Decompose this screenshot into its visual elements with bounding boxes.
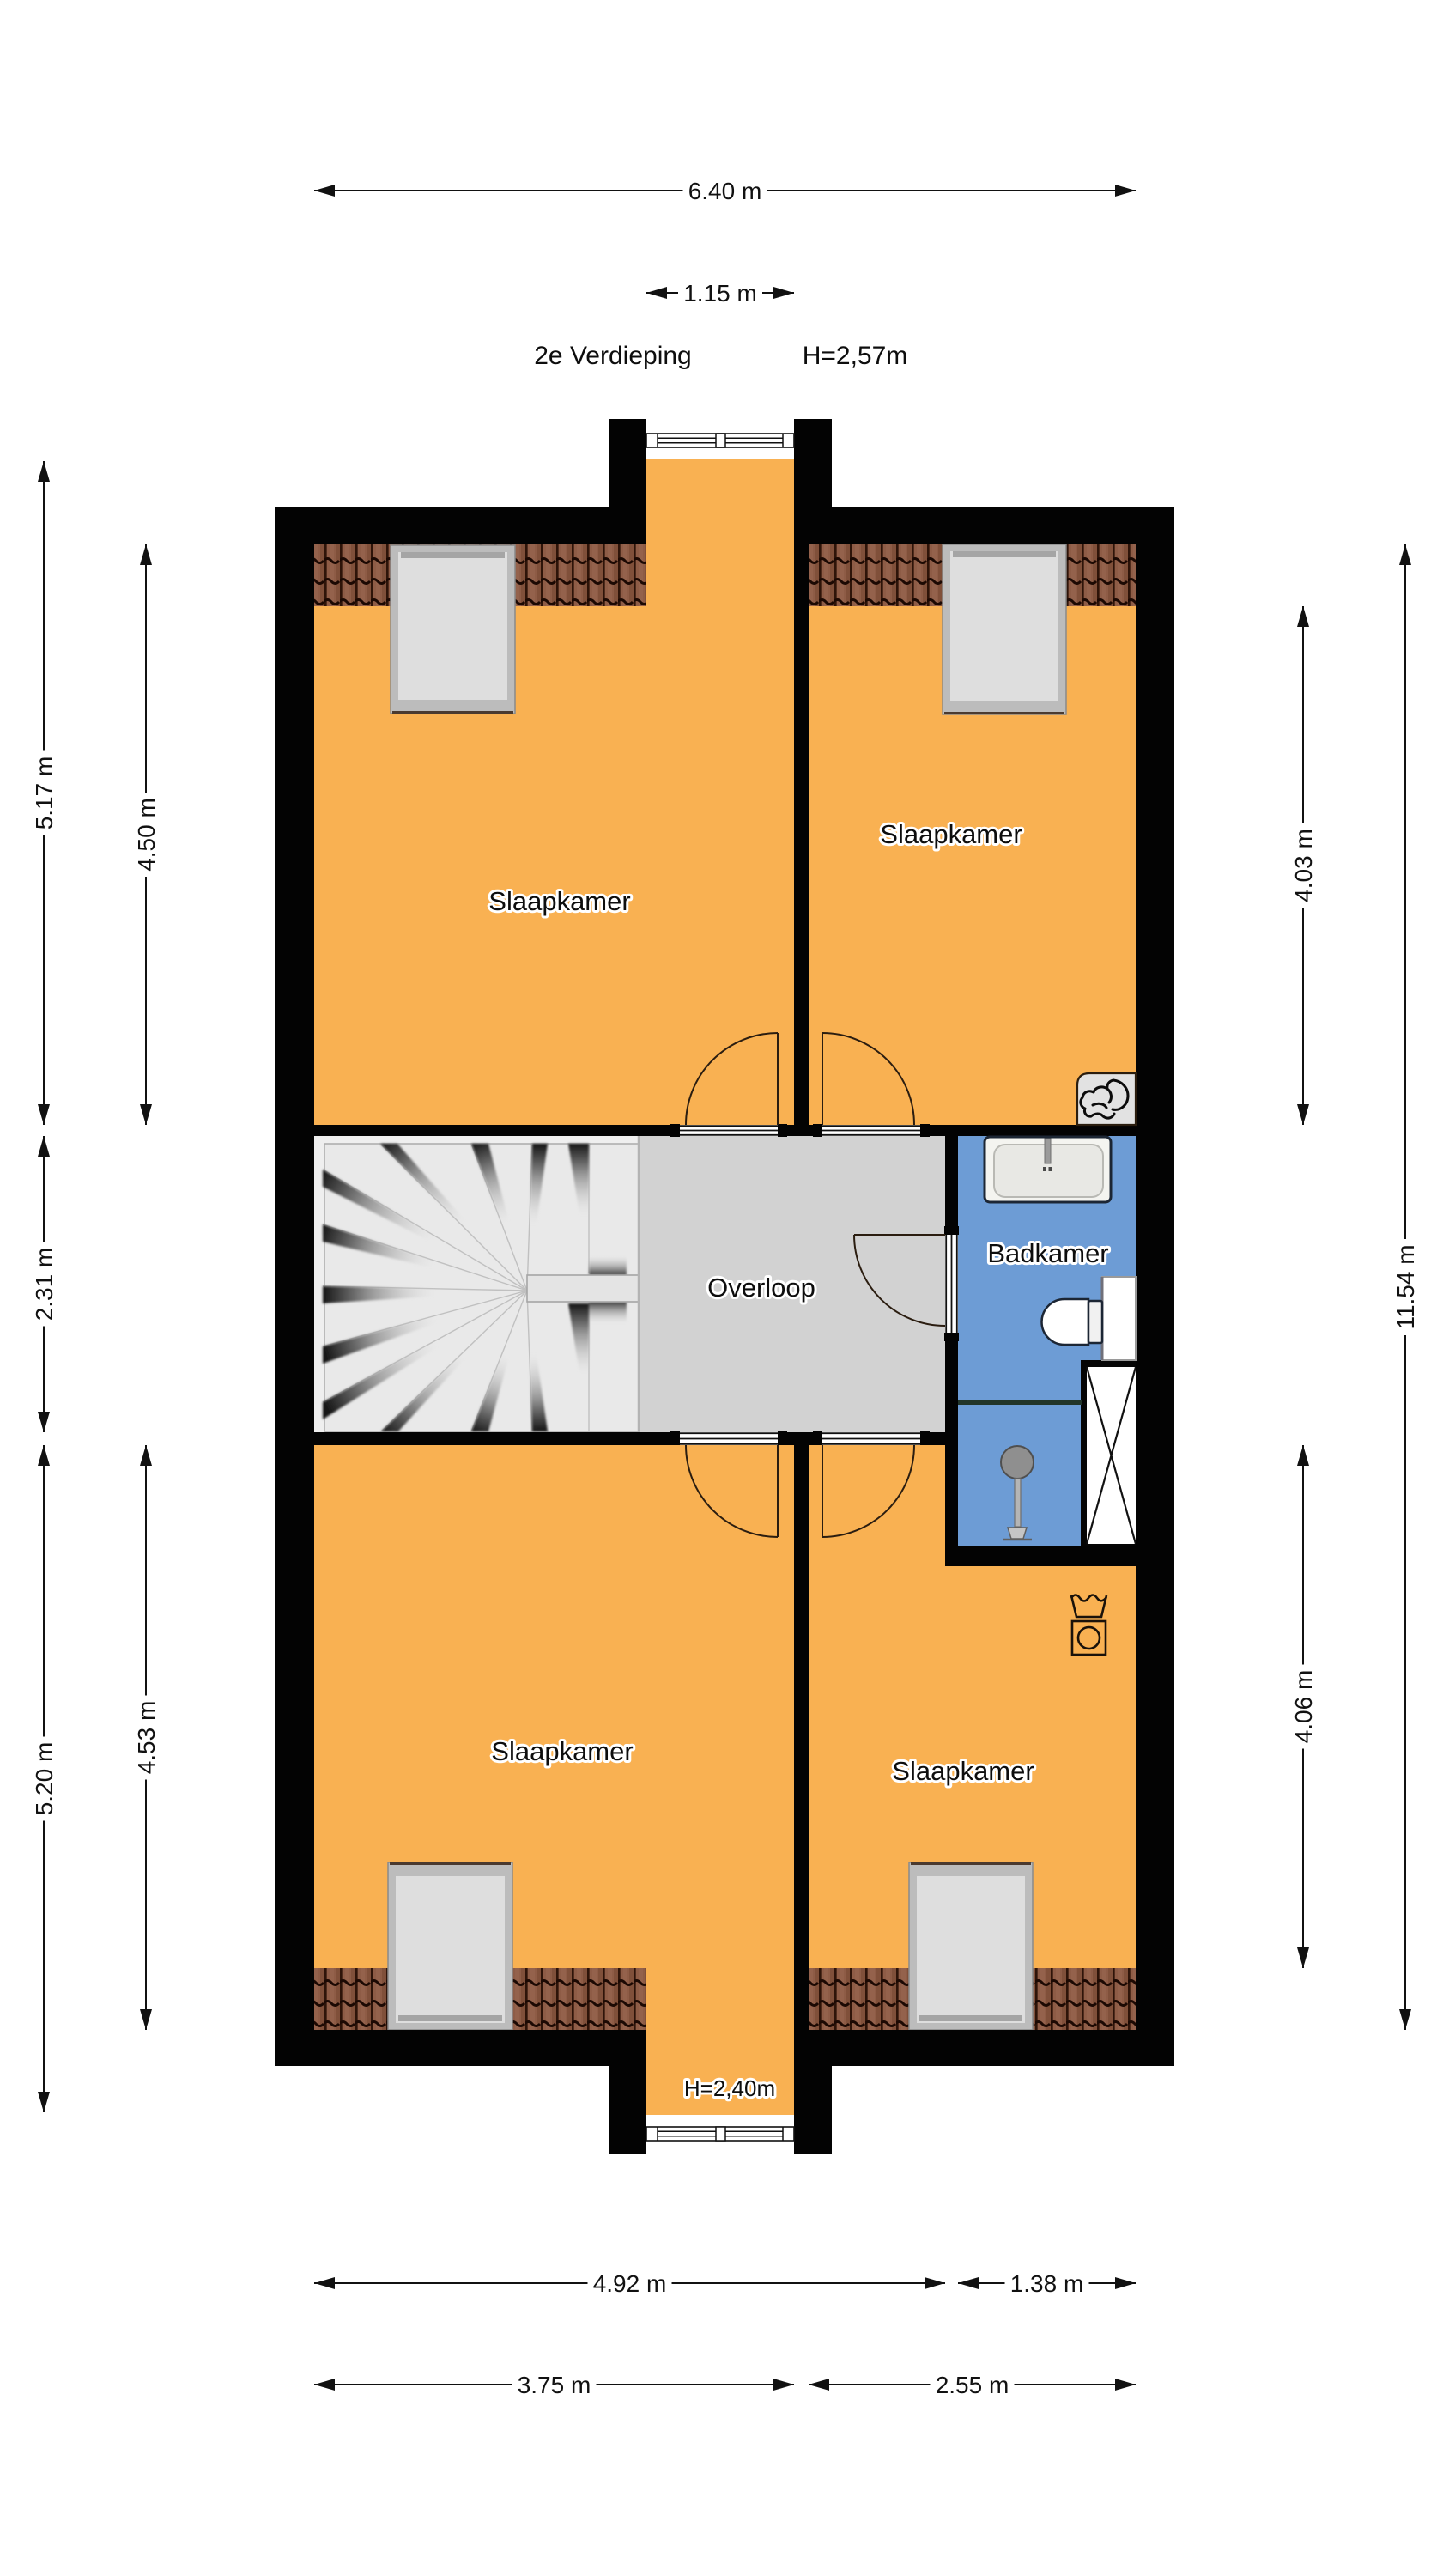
svg-text:Overloop: Overloop — [707, 1273, 815, 1303]
svg-text:H=2,40m: H=2,40m — [684, 2075, 775, 2101]
svg-text:3.75 m: 3.75 m — [518, 2372, 591, 2398]
svg-text:4.53 m: 4.53 m — [133, 1701, 160, 1775]
svg-text:5.17 m: 5.17 m — [31, 756, 58, 830]
svg-text:1.38 m: 1.38 m — [1010, 2270, 1084, 2297]
svg-text:4.03 m: 4.03 m — [1290, 829, 1317, 902]
svg-text:Slaapkamer: Slaapkamer — [488, 886, 630, 916]
svg-text:4.92 m: 4.92 m — [593, 2270, 667, 2297]
svg-text:Slaapkamer: Slaapkamer — [880, 819, 1022, 849]
svg-text:11.54 m: 11.54 m — [1392, 1244, 1419, 1329]
svg-text:6.40 m: 6.40 m — [688, 178, 762, 204]
svg-text:H=2,57m: H=2,57m — [803, 342, 908, 370]
svg-text:Slaapkamer: Slaapkamer — [491, 1736, 633, 1766]
svg-text:2e Verdieping: 2e Verdieping — [534, 342, 692, 370]
svg-text:2.55 m: 2.55 m — [936, 2372, 1009, 2398]
svg-text:5.20 m: 5.20 m — [31, 1742, 58, 1816]
svg-text:2.31 m: 2.31 m — [31, 1248, 58, 1321]
svg-text:1.15 m: 1.15 m — [683, 280, 757, 307]
svg-text:Slaapkamer: Slaapkamer — [892, 1756, 1034, 1786]
svg-text:4.50 m: 4.50 m — [133, 798, 160, 872]
svg-text:4.06 m: 4.06 m — [1290, 1670, 1317, 1744]
svg-text:Badkamer: Badkamer — [987, 1238, 1108, 1268]
